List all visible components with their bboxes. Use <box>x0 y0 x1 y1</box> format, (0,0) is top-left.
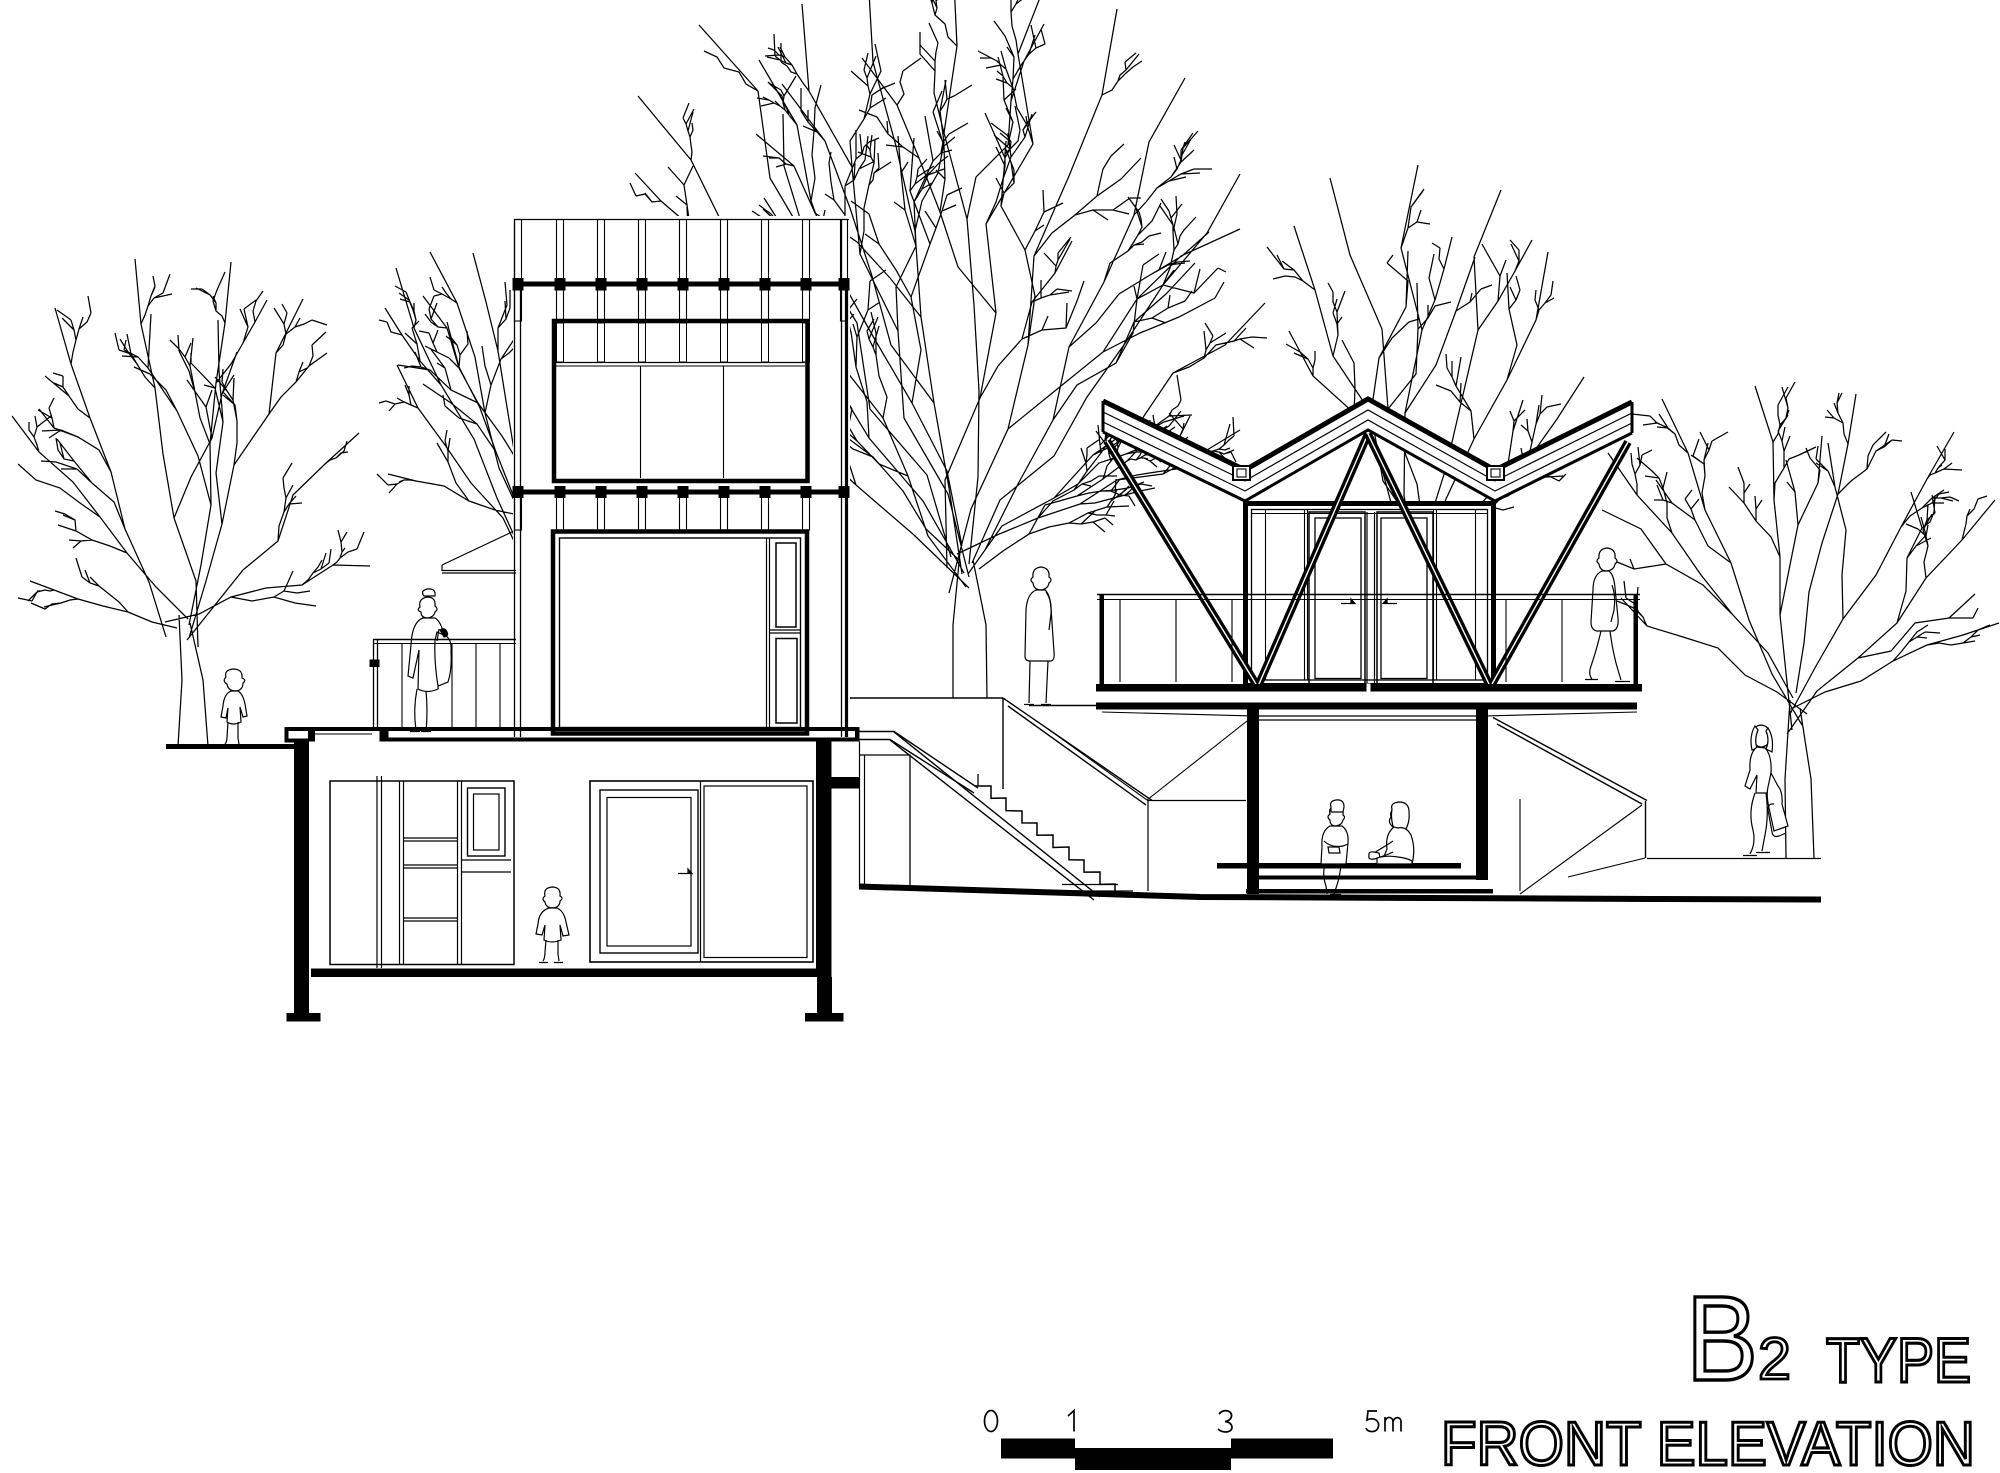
svg-text:2: 2 <box>1758 1326 1791 1392</box>
svg-text:B: B <box>1686 1270 1758 1406</box>
svg-text:TYPE: TYPE <box>1826 1326 1971 1396</box>
svg-text:FRONT ELEVATION: FRONT ELEVATION <box>1441 1410 1975 1473</box>
